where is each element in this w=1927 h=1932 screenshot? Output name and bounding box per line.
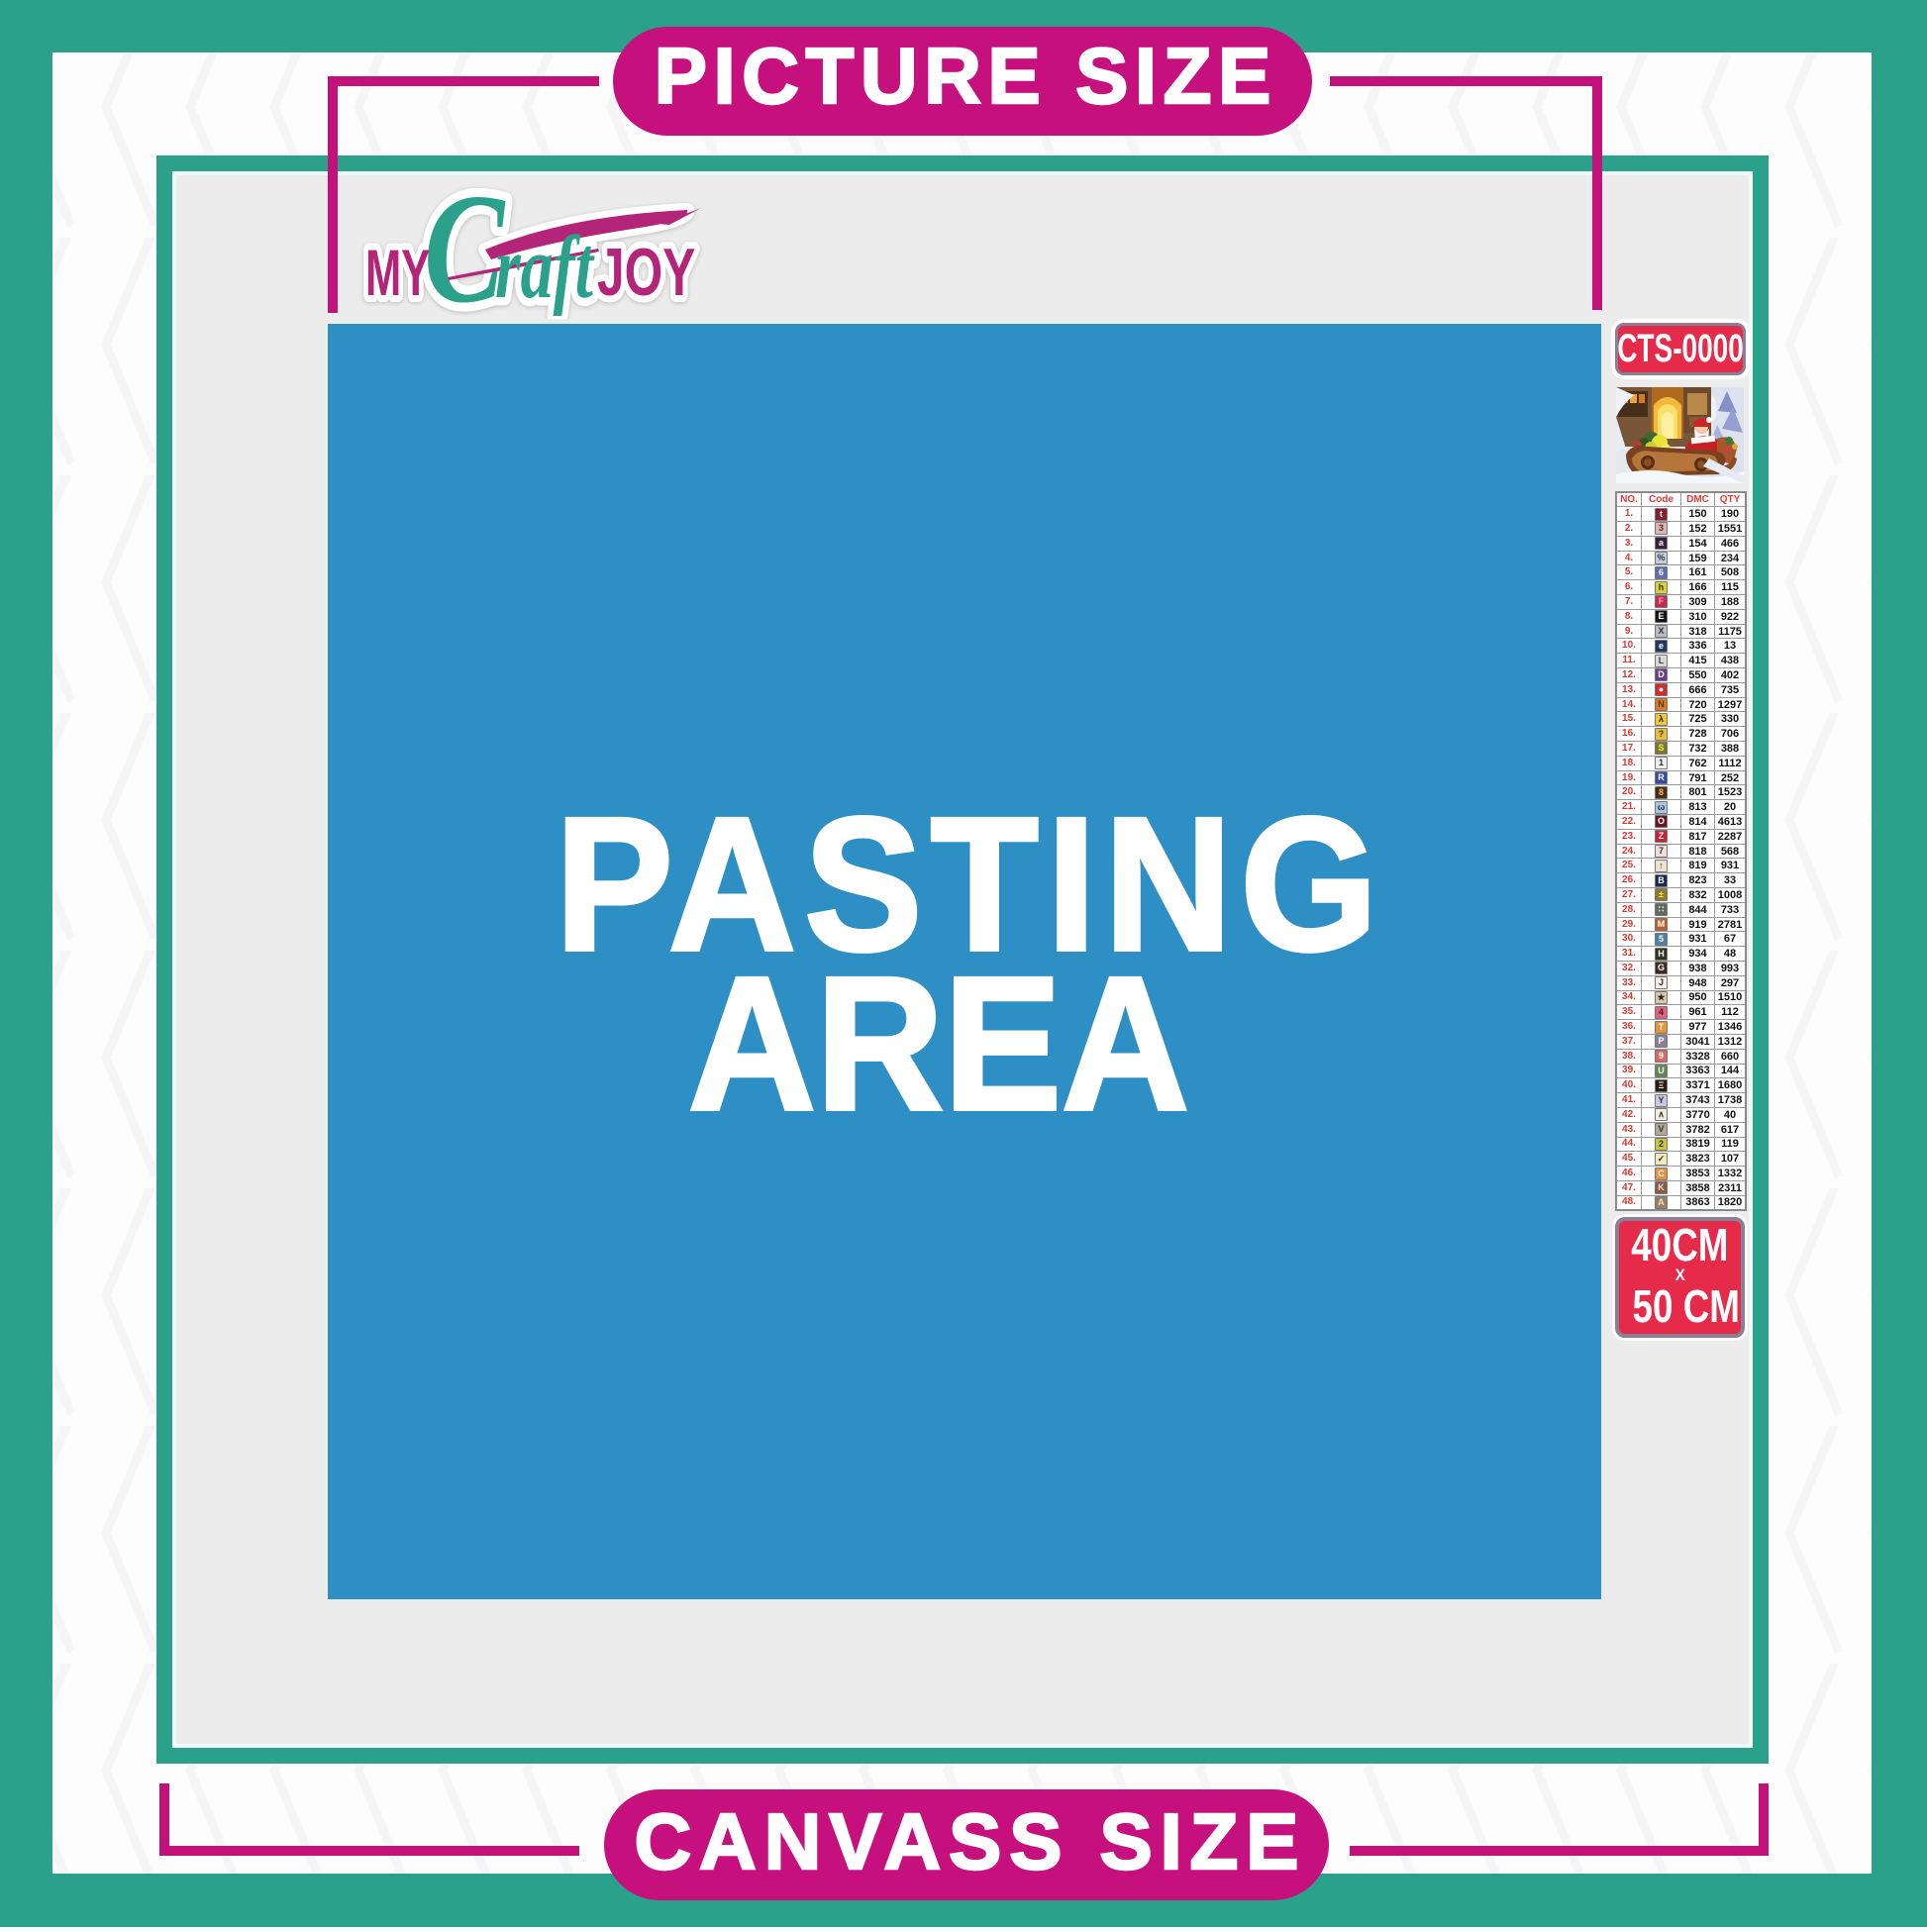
svg-text:JOY: JOY xyxy=(597,234,695,310)
svg-text:raft: raft xyxy=(495,219,595,317)
svg-text:MY: MY xyxy=(365,236,430,309)
svg-text:C: C xyxy=(424,170,506,319)
